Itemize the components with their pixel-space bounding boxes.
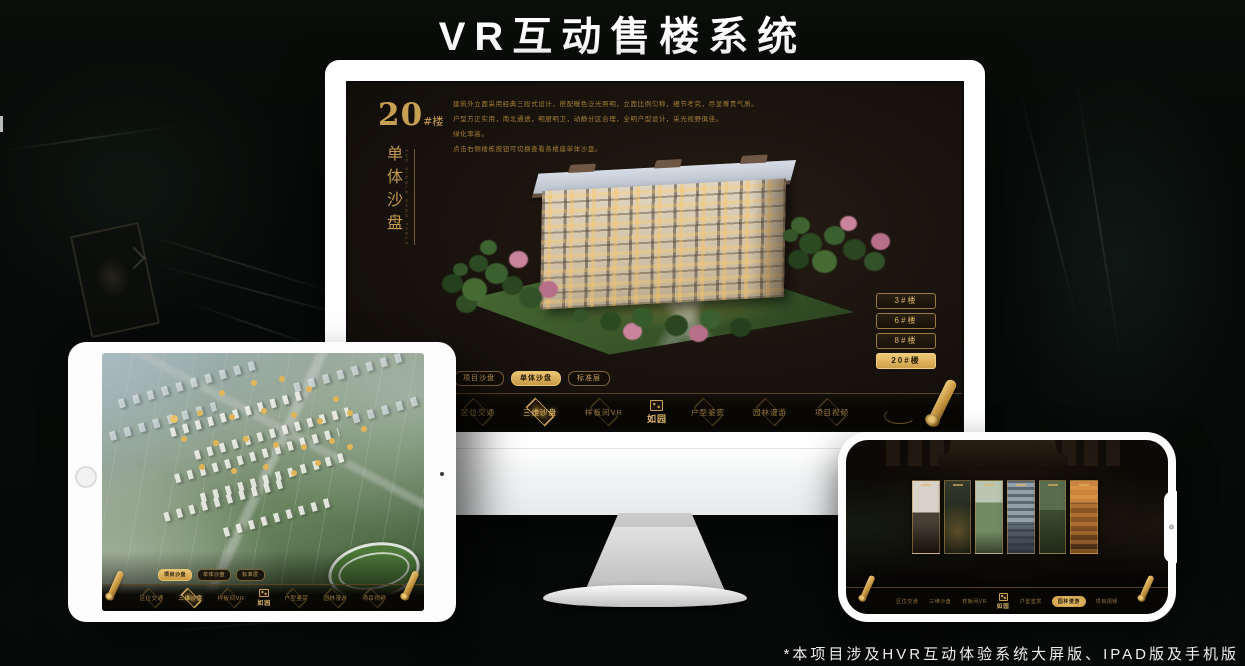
background-road-line [1019,91,1079,324]
nav-item-label: 园林漫游 [1058,599,1080,605]
gold-divider-line [414,149,415,245]
logo-text: 如园 [997,602,1010,610]
description-line: 建筑外立面采用经典三段式设计，搭配暖色泛光照明，立面比例匀称，细节考究，尽显尊贵… [453,97,893,112]
phone-mockup: 区位交通 三维沙盘 样板间VR 如园 户型鉴赏 园林漫游 项目视频 [838,432,1176,622]
nav-item-location-traffic[interactable]: 区位交通 [895,596,919,607]
scroll-icon[interactable] [927,378,958,426]
scene-panel-building[interactable] [1007,480,1035,554]
phone-screen: 区位交通 三维沙盘 样板间VR 如园 户型鉴赏 园林漫游 项目视频 [846,440,1168,614]
camera-icon [1169,525,1174,530]
ruyuan-logo: 如园 [997,593,1010,610]
nav-item-model-room-vr[interactable]: 样板间VR [581,404,627,421]
floor-button-20[interactable]: 20#楼 [876,353,936,369]
nav-item-garden-tour[interactable]: 园林漫游 [1052,596,1086,607]
trees-cluster [573,309,588,322]
nav-item-label: 三维沙盘 [929,599,951,605]
floor-button-6[interactable]: 6#楼 [876,313,936,329]
floor-button-8[interactable]: 8#楼 [876,333,936,349]
poster-canvas: VR互动售楼系统 20#楼 单体沙盘 THE SINGLE SAND TABLE… [0,0,1245,666]
tab-standard-floor[interactable]: 标准层 [568,371,610,386]
camera-icon [440,472,444,476]
scene-panel-interior[interactable] [912,480,940,554]
description-line: 户型方正实用，南北通透，明厨明卫，动静分区合理，全明户型设计，采光视野俱佳。 [453,112,859,127]
ruyuan-seal-icon [259,589,269,597]
building-number-markers [102,353,106,357]
nav-item-label: 样板间VR [585,408,623,417]
nav-item-label: 户型鉴赏 [691,408,725,417]
edge-highlight-mark [0,116,3,132]
nav-item-project-video[interactable]: 项目视频 [360,592,388,604]
nav-item-floorplan-gallery[interactable]: 户型鉴赏 [282,592,310,604]
background-picture-frame [70,222,160,338]
nav-item-label: 园林漫游 [323,596,347,602]
scene-panel-gallery [912,480,1098,554]
floor-button-3[interactable]: 3#楼 [876,293,936,309]
tablet-mockup: 项目沙盘 单体沙盘 标准层 区位交通 三维沙盘 样板间VR 如园 户型鉴赏 园林… [68,342,456,622]
nav-item-model-room-vr[interactable]: 样板间VR [961,596,987,607]
tab-project-sandbox[interactable]: 项目沙盘 [454,371,504,386]
nav-item-floorplan-gallery[interactable]: 户型鉴赏 [687,404,729,421]
building-number: 20 [378,97,423,133]
floor-button-group: 3#楼 6#楼 8#楼 20#楼 [876,293,936,373]
roof-dormer [654,159,682,168]
roof-dormer [568,164,596,173]
tab-single-building-sandbox[interactable]: 单体沙盘 [511,371,561,386]
main-nav-bar: 区位交通 三维沙盘 样板间VR 如园 户型鉴赏 园林漫游 项目视频 [846,587,1168,614]
phone-notch [1164,491,1177,563]
main-nav-bar: 区位交通 三维沙盘 样板间VR 如园 户型鉴赏 园林漫游 项目视频 [102,584,424,611]
scroll-flourish [884,408,916,424]
nav-item-floorplan-gallery[interactable]: 户型鉴赏 [1019,596,1043,607]
monitor-base [543,585,747,607]
trees-cluster [453,263,468,276]
scene-panel-courtyard[interactable] [944,480,972,554]
nav-item-label: 区位交通 [461,408,495,417]
building-facade [540,178,786,309]
nav-item-location-traffic[interactable]: 区位交通 [457,404,499,421]
view-tab-group: 项目沙盘 单体沙盘 标准层 [158,569,265,581]
ruyuan-logo: 如园 [647,400,667,425]
page-title: VR互动售楼系统 [0,4,1245,62]
building-3d-render [423,143,913,378]
nav-item-model-room-vr[interactable]: 样板间VR [216,592,247,604]
tab-standard-floor[interactable]: 标准层 [236,569,265,581]
view-tab-group: 项目沙盘 单体沙盘 标准层 [454,371,610,386]
logo-text: 如园 [647,412,667,425]
nav-item-label: 户型鉴赏 [1020,599,1042,605]
building-number-suffix: #楼 [423,115,443,128]
trees-cluster [783,229,798,242]
home-button[interactable] [75,466,97,488]
logo-text: 如园 [257,598,271,607]
building-number-heading: 20#楼 [378,97,443,133]
nav-item-label: 园林漫游 [753,408,787,417]
background-road-line [1074,71,1123,368]
ruyuan-seal-icon [999,593,1008,601]
nav-item-location-traffic[interactable]: 区位交通 [138,592,166,604]
nav-item-3d-sandbox[interactable]: 三维沙盘 [928,596,952,607]
nav-item-3d-sandbox[interactable]: 三维沙盘 [519,404,561,421]
footnote-text: *本项目涉及HVR互动体验系统大屏版、IPAD版及手机版 [784,643,1239,664]
roof-dormer [740,155,768,164]
nav-item-label: 项目视频 [1096,599,1118,605]
nav-item-3d-sandbox[interactable]: 三维沙盘 [177,592,205,604]
nav-item-label: 户型鉴赏 [284,596,308,602]
nav-item-label: 项目视频 [815,408,849,417]
nav-item-label: 样板间VR [962,599,986,605]
vertical-subtitle-en: THE SINGLE SAND TABLE [404,149,409,249]
nav-item-label: 样板间VR [218,596,245,602]
description-line: 绿化率高。 [453,127,517,142]
ruyuan-logo: 如园 [257,589,271,607]
background-road-line [0,125,178,152]
nav-item-label: 项目视频 [362,596,386,602]
nav-item-garden-tour[interactable]: 园林漫游 [749,404,791,421]
entrance-gate-silhouette [938,440,1068,470]
ruyuan-seal-icon [650,400,663,411]
nav-item-label: 三维沙盘 [523,408,557,417]
nav-item-label: 三维沙盘 [179,596,203,602]
scene-panel-trees[interactable] [1039,480,1067,554]
nav-item-garden-tour[interactable]: 园林漫游 [321,592,349,604]
tab-single-building-sandbox[interactable]: 单体沙盘 [197,569,231,581]
nav-item-project-video[interactable]: 项目视频 [1095,596,1119,607]
scene-panel-garden-path[interactable] [975,480,1003,554]
nav-item-label: 区位交通 [140,596,164,602]
nav-item-label: 区位交通 [896,599,918,605]
nav-item-project-video[interactable]: 项目视频 [811,404,853,421]
tab-project-sandbox[interactable]: 项目沙盘 [158,569,192,581]
tablet-screen: 项目沙盘 单体沙盘 标准层 区位交通 三维沙盘 样板间VR 如园 户型鉴赏 园林… [102,353,424,611]
scene-panel-interior-warm[interactable] [1070,480,1098,554]
monitor-stand [585,513,725,591]
single-sandbox-vertical-title: 单体沙盘 [381,145,405,275]
